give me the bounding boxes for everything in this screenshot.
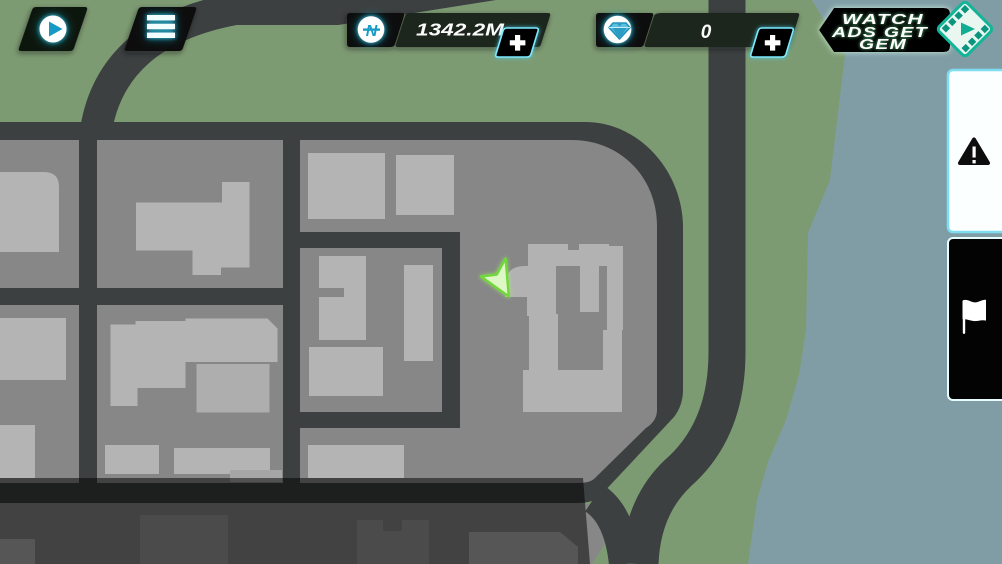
svg-text:1342.2M: 1342.2M bbox=[416, 19, 505, 39]
svg-text:0: 0 bbox=[701, 22, 712, 43]
svg-text:GEM: GEM bbox=[859, 37, 907, 53]
svg-text:N: N bbox=[366, 23, 378, 40]
